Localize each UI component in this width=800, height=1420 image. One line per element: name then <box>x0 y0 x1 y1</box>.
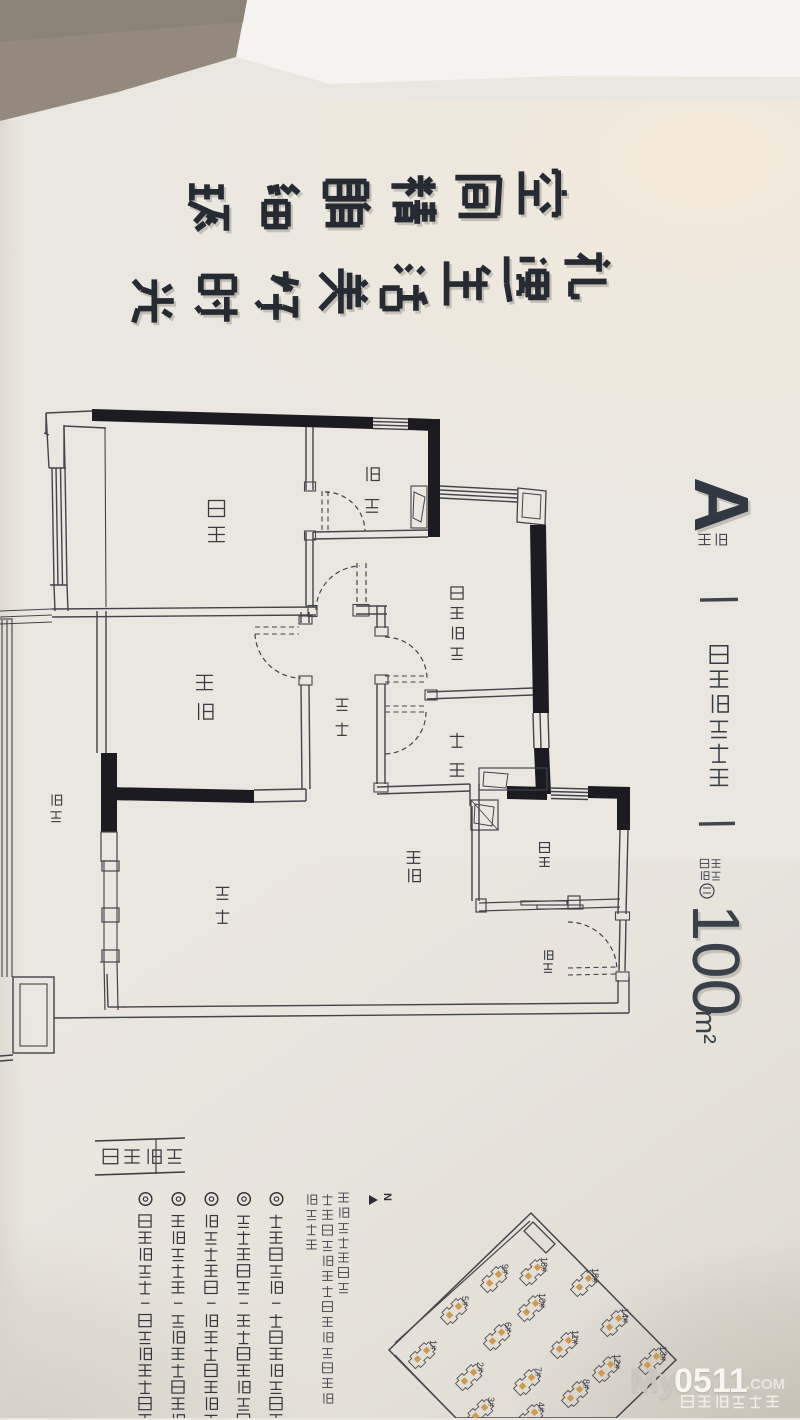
svg-text:8#: 8# <box>581 1379 591 1389</box>
svg-text:15#: 15# <box>590 1268 600 1283</box>
svg-text:4#: 4# <box>536 1402 546 1412</box>
svg-text:2#: 2# <box>475 1362 485 1372</box>
svg-text:A: A <box>678 477 764 533</box>
svg-text:16#: 16# <box>539 1257 549 1272</box>
svg-text:12#: 12# <box>612 1354 622 1369</box>
svg-text:14#: 14# <box>620 1308 630 1323</box>
svg-text:13#: 13# <box>658 1346 668 1361</box>
svg-text:5#: 5# <box>460 1296 470 1306</box>
svg-text:7#: 7# <box>533 1367 543 1377</box>
svg-text:100: 100 <box>678 904 753 1016</box>
svg-text:3#: 3# <box>486 1397 496 1407</box>
svg-text:11#: 11# <box>570 1330 580 1344</box>
svg-text:10#: 10# <box>537 1293 547 1308</box>
svg-text:1#: 1# <box>428 1340 438 1350</box>
svg-text:6#: 6# <box>503 1322 513 1332</box>
svg-text:9#: 9# <box>500 1264 510 1274</box>
svg-text:m²: m² <box>689 1010 721 1044</box>
